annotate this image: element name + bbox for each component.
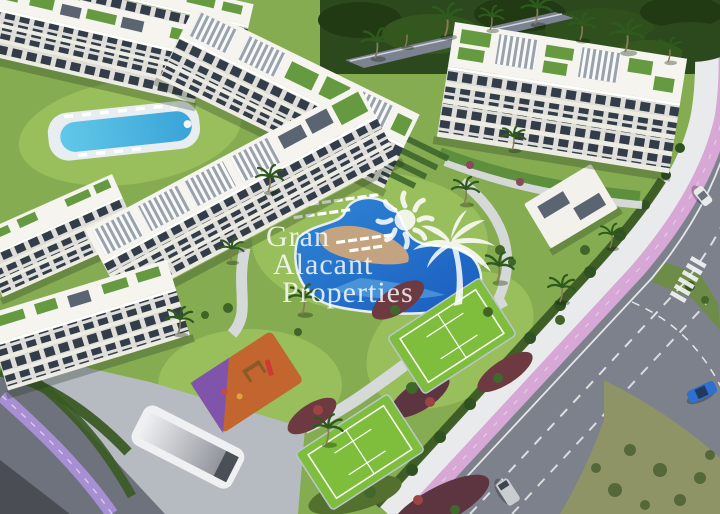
sun-icon (378, 193, 432, 247)
property-aerial-render: Gran Alacant Properties (0, 0, 720, 514)
watermark-line-3: Properties (282, 276, 414, 309)
